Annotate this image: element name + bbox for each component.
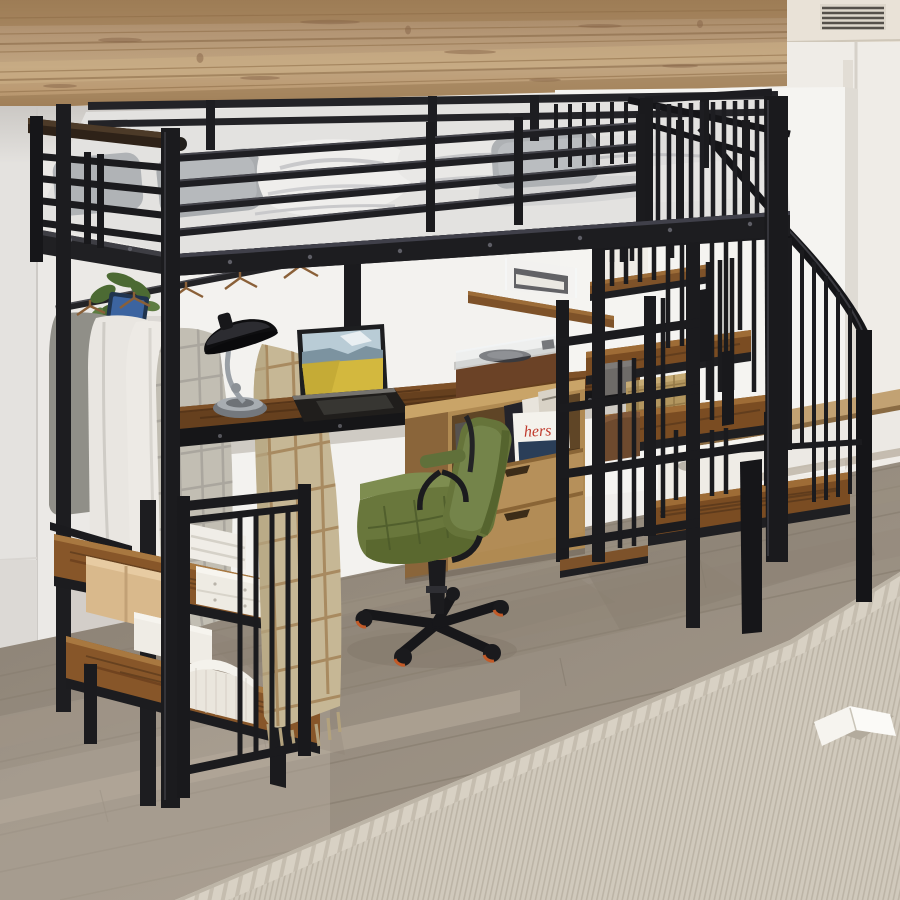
svg-text:hers: hers — [523, 422, 551, 440]
